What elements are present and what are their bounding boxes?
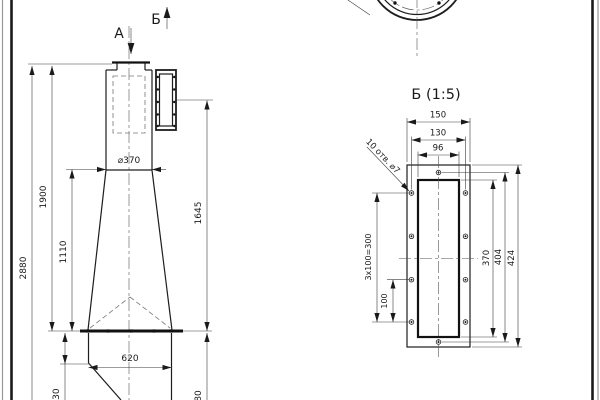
front-view: А Б bbox=[19, 7, 213, 400]
holes-callout: 10 отв. ⌀7 bbox=[363, 137, 409, 191]
dim-hole-pitch: 100 bbox=[380, 293, 389, 308]
dim-width-inner: 96 bbox=[433, 144, 444, 154]
side-flange bbox=[156, 70, 213, 130]
bolt bbox=[169, 329, 172, 332]
dim-upper-height: 1900 bbox=[39, 185, 49, 208]
holes-note: 10 отв. ⌀7 bbox=[363, 137, 401, 176]
section-a-label: А bbox=[114, 26, 124, 42]
dim-diameter: ⌀370 bbox=[118, 156, 141, 166]
bottom-flange bbox=[48, 329, 212, 332]
section-arrow-a: А bbox=[114, 26, 131, 54]
engineering-drawing-sheet: А Б bbox=[0, 0, 600, 400]
dim-bottom: 80 bbox=[194, 390, 204, 400]
dim-cone-height: 1110 bbox=[59, 240, 69, 263]
detail-right-dimensions: 370 404 424 bbox=[442, 165, 523, 347]
detail-title: Б (1:5) bbox=[411, 87, 460, 103]
cone-body bbox=[88, 170, 172, 330]
detail-left-dimensions: 3x100=300 100 bbox=[364, 193, 409, 322]
section-b-label: Б bbox=[151, 12, 161, 28]
bolt-hole bbox=[393, 1, 396, 4]
dim-width-holes: 130 bbox=[430, 129, 446, 139]
bolt bbox=[129, 329, 132, 332]
bolt-hole bbox=[437, 1, 440, 4]
detail-view-b: Б (1:5) 10 отв. ⌀7 bbox=[363, 87, 522, 357]
bolt bbox=[106, 329, 109, 332]
dim-hole-pitch-total: 3x100=300 bbox=[364, 233, 373, 280]
dim-outlet-width: 620 bbox=[121, 354, 138, 364]
outlet-duct bbox=[60, 333, 172, 400]
drawing-canvas: А Б bbox=[0, 0, 600, 400]
dim-height-holes: 404 bbox=[494, 249, 504, 265]
dim-height-inner: 370 bbox=[482, 250, 492, 266]
top-view-circular-flange bbox=[342, 0, 465, 57]
dim-width-outer: 150 bbox=[430, 111, 446, 121]
sheet-frame bbox=[3, 0, 599, 400]
dim-skirt: 230 bbox=[52, 388, 62, 400]
bolt bbox=[86, 329, 89, 332]
dim-side-flange: 1645 bbox=[194, 202, 204, 225]
dim-total-height: 2880 bbox=[19, 256, 29, 279]
section-arrow-b: Б bbox=[151, 7, 167, 29]
dim-height-outer: 424 bbox=[507, 250, 517, 266]
bolt bbox=[152, 329, 155, 332]
